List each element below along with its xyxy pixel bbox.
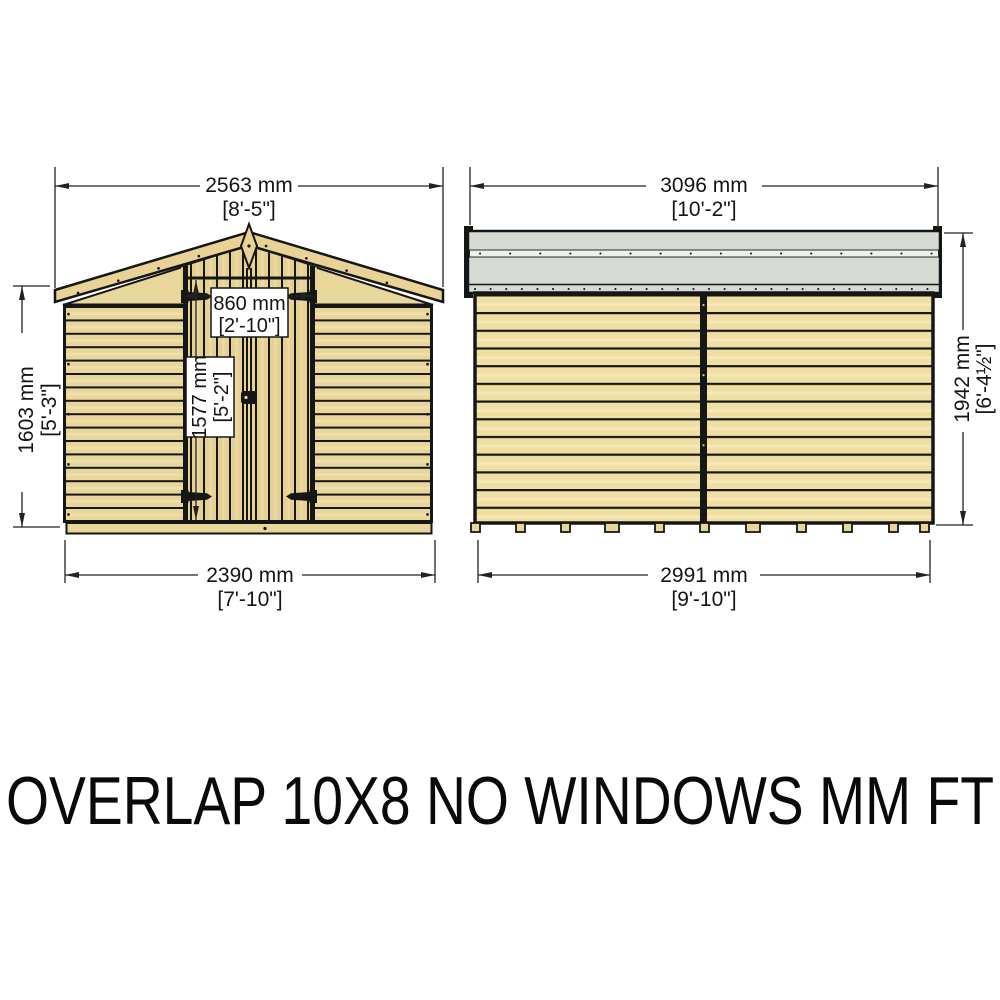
front-base-width-mm: 2390 mm: [206, 564, 294, 587]
door-height-mm: 1577 mm: [189, 355, 211, 438]
side-height-ft: [6'-4½"]: [973, 344, 996, 415]
side-height-mm: 1942 mm: [951, 335, 974, 423]
door-post-right: [310, 266, 315, 523]
front-roof-width-ft: [8'-5"]: [222, 198, 275, 221]
side-roof-width-mm: 3096 mm: [660, 174, 748, 197]
front-elevation: [55, 224, 443, 534]
door-width-ft: [2'-10"]: [218, 315, 280, 337]
door-width-mm: 860 mm: [213, 293, 285, 315]
side-roof-width-ft: [10'-2"]: [671, 198, 736, 221]
front-roof-width-mm: 2563 mm: [205, 174, 293, 197]
side-wall-divider: [700, 293, 707, 523]
front-wall-height-mm: 1603 mm: [15, 366, 38, 454]
side-elevation: [464, 226, 942, 532]
door-height-ft: [5'-2"]: [211, 372, 233, 423]
shed-technical-drawing: 2563 mm [8'-5"] 860 mm [2'-10"] 1577 mm …: [0, 0, 1000, 1000]
drawing-svg: 2563 mm [8'-5"] 860 mm [2'-10"] 1577 mm …: [0, 0, 1000, 1000]
base-nail: [263, 527, 266, 530]
door-handle: [241, 391, 257, 404]
side-base-width-ft: [9'-10"]: [671, 588, 736, 611]
product-title: OVERLAP 10X8 NO WINDOWS MM FT: [6, 763, 994, 839]
side-base-width-mm: 2991 mm: [660, 564, 748, 587]
front-base-width-ft: [7'-10"]: [217, 588, 282, 611]
front-wall-left-cladding: [65, 305, 184, 523]
front-wall-right-cladding: [315, 305, 432, 523]
side-roof: [468, 231, 940, 293]
front-wall-height-ft: [5'-3"]: [38, 383, 61, 436]
front-base-rail: [67, 523, 432, 534]
